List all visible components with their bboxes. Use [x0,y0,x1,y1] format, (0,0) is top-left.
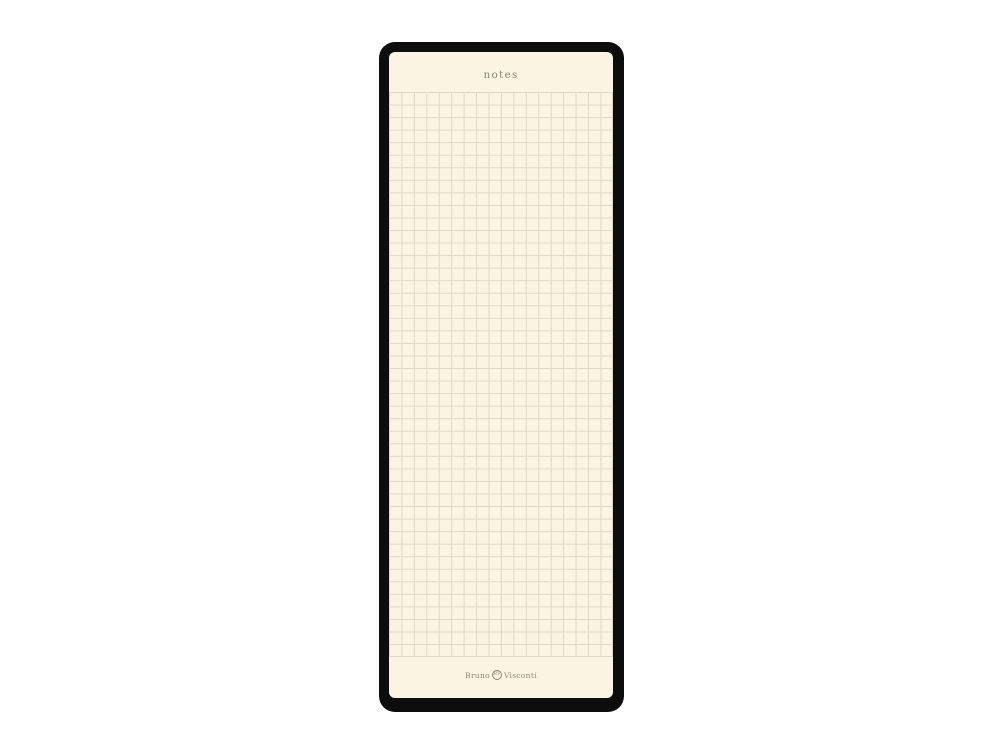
brand-word-visconti: Visconti [504,670,537,681]
notepad-page[interactable]: notes Bruno BV Visconti [389,52,613,698]
page-title: notes [389,69,613,81]
squared-grid-paper[interactable] [389,92,613,657]
brand-monogram-letters: BV [493,669,500,680]
notepad-frame: notes Bruno BV Visconti [379,42,624,712]
brand-word-bruno: Bruno [465,670,490,681]
canvas: notes Bruno BV Visconti [0,0,1000,750]
brand-monogram-icon: BV [492,670,502,680]
brand-logo: Bruno BV Visconti [389,670,613,681]
